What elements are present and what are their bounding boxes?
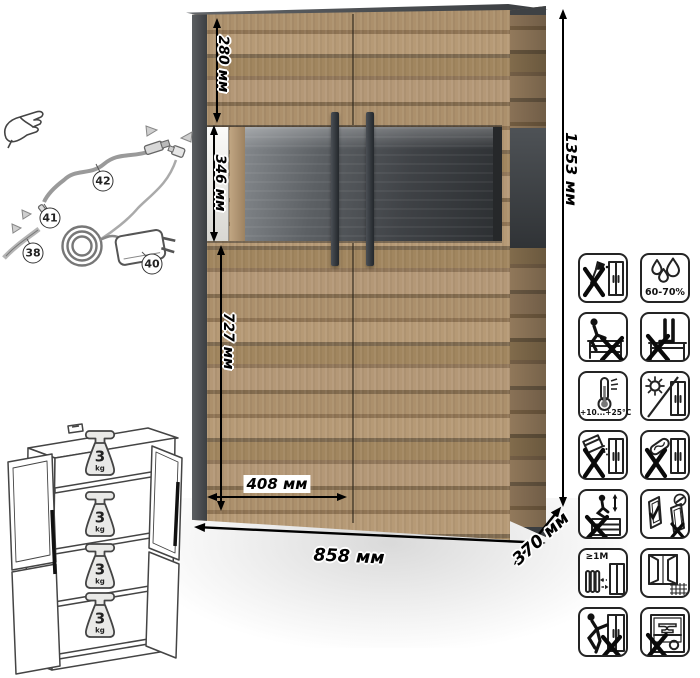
shelf-weight-2: 3kg: [95, 511, 105, 534]
avoid-direct-sunlight-icon: [640, 371, 690, 421]
no-scouring-pads-icon: [640, 430, 690, 480]
part-number-led-strip: 38: [23, 243, 44, 264]
dim-label-total-width: 858 мм: [313, 545, 385, 568]
lower-door-seam: [352, 243, 354, 523]
display-inner-pillar: [230, 127, 245, 241]
no-dragging-icon: [578, 607, 628, 657]
humidity-range-icon: 60-70%: [640, 253, 690, 303]
upper-door-seam: [352, 14, 354, 125]
glass-display-section: [207, 125, 502, 243]
dim-label-display-section: 346 мм: [212, 155, 228, 212]
left-door-handle: [331, 112, 339, 266]
part-number-cable: 42: [93, 171, 114, 192]
temperature-range-icon: +10...+25°C: [578, 371, 628, 421]
ventilate-room-icon: [640, 548, 690, 598]
right-door-handle: [366, 112, 374, 266]
dim-label-door-width: 408 мм: [243, 475, 310, 493]
dim-label-bottom-section: 727 мм: [220, 313, 236, 370]
no-heavy-objects-inside-icon: [640, 607, 690, 657]
side-glass-panel: [510, 128, 546, 248]
no-sharp-tools-icon: [578, 253, 628, 303]
part-number-connector: 41: [40, 208, 61, 229]
cabinet-side-panel: [510, 6, 546, 537]
shelf-weight-3: 3kg: [95, 563, 105, 586]
door-adjustment-allowed-icon: [640, 489, 690, 539]
shelf-weight-1: 3kg: [95, 450, 105, 473]
no-abrasive-cleaners-icon: [578, 430, 628, 480]
display-right-frame: [493, 127, 502, 241]
cabinet-front: [192, 10, 510, 540]
keep-1m-from-heat-icon: ≥1M: [578, 548, 628, 598]
no-sitting-on-furniture-icon: [578, 312, 628, 362]
hand-icon: [5, 111, 43, 148]
dim-label-top-section: 280 мм: [215, 36, 231, 93]
shelf-weight-4: 3kg: [95, 612, 105, 635]
part-number-adapter: 40: [142, 254, 163, 275]
no-jumping-on-furniture-icon: [578, 489, 628, 539]
no-standing-on-furniture-icon: [640, 312, 690, 362]
product-info-sheet: 280 мм 346 мм 727 мм 1353 мм 408 мм 858 …: [0, 0, 700, 678]
dim-label-total-height: 1353 мм: [562, 132, 580, 206]
